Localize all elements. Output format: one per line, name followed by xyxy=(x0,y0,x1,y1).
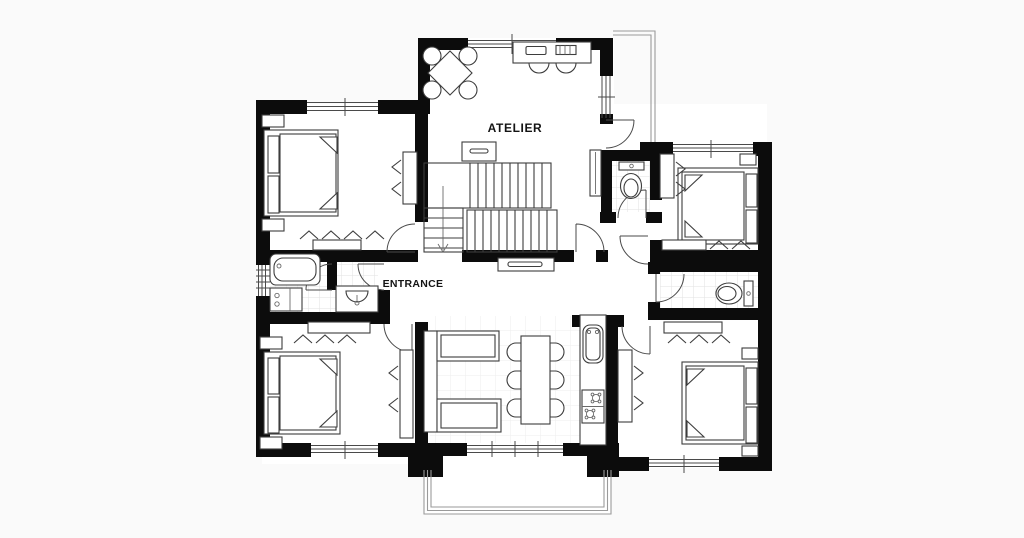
toilet-icon xyxy=(716,281,753,306)
atelier-label: ATELIER xyxy=(488,121,543,135)
sink-icon xyxy=(583,325,603,363)
storage-cabinet-icon xyxy=(462,142,496,161)
desk-icon xyxy=(513,42,591,63)
stove-icon xyxy=(582,390,604,423)
washbasin-icon xyxy=(336,286,378,312)
floor-plan: ATELIER ENTRANCE xyxy=(0,0,1024,538)
dining-table-icon xyxy=(507,336,564,424)
console-table-icon xyxy=(498,258,554,271)
room-wc-right xyxy=(716,281,753,306)
shaft xyxy=(590,150,601,196)
meeting-table-icon xyxy=(423,47,477,99)
bed-icon xyxy=(678,154,758,244)
bath-cabinet-icon xyxy=(270,288,302,311)
bed-icon xyxy=(262,115,338,231)
toilet-icon xyxy=(619,162,644,199)
room-wc-top xyxy=(619,162,644,199)
kitchen-counter xyxy=(580,315,606,445)
bathtub-icon xyxy=(270,254,320,285)
floor-plan-page: ATELIER ENTRANCE xyxy=(0,0,1024,538)
bed-icon xyxy=(682,348,758,456)
entrance-label: ENTRANCE xyxy=(383,278,444,290)
bed-icon xyxy=(260,337,340,449)
